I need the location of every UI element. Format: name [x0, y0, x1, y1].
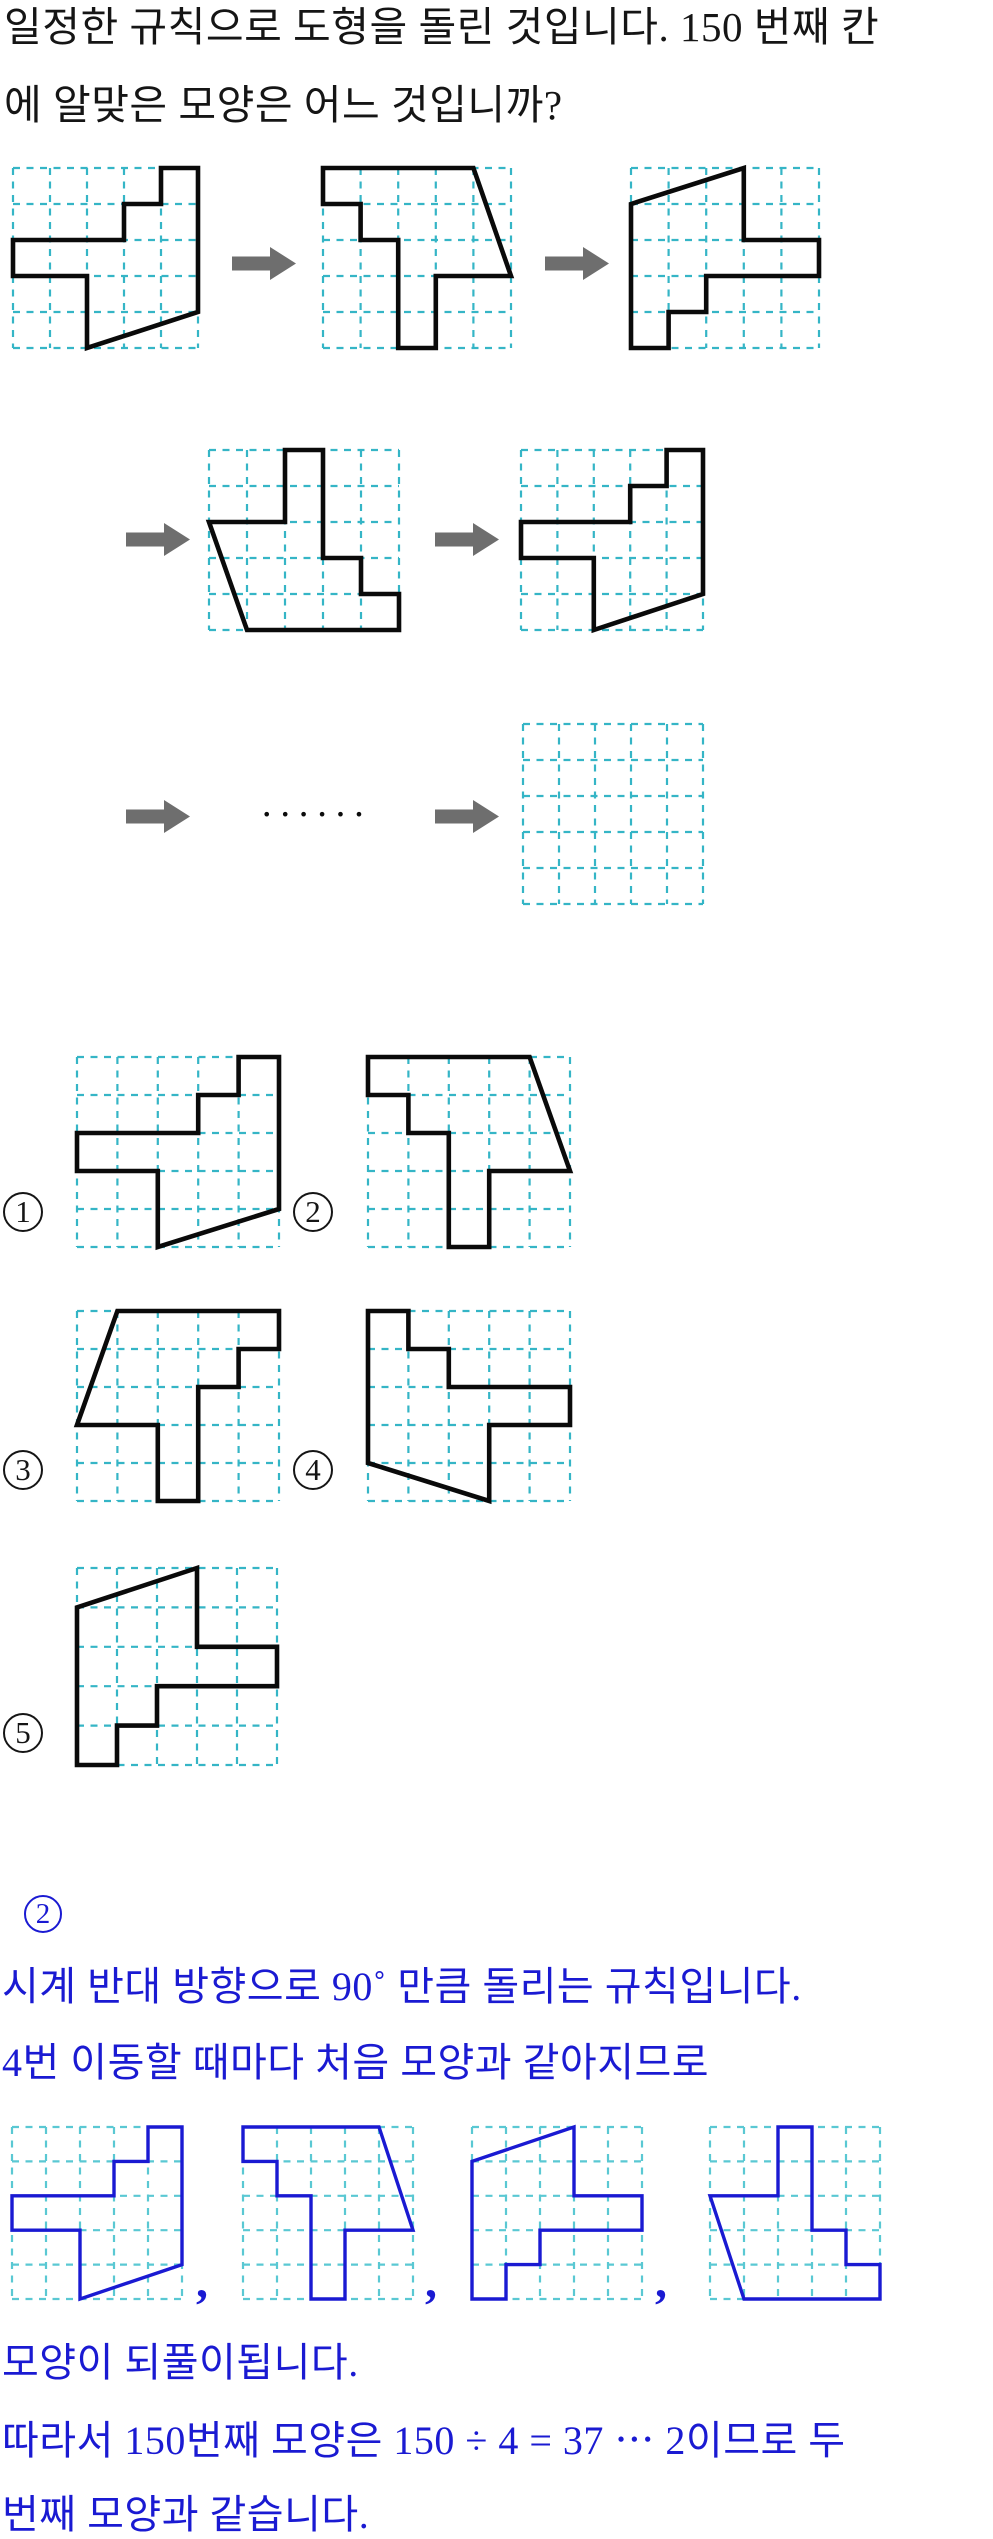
option-5-number: 5	[3, 1713, 43, 1753]
sequence-figure-5	[516, 445, 708, 635]
arrow-right-icon	[126, 523, 190, 556]
answer-text-line-5: 번째 모양과 같습니다.	[2, 2490, 369, 2539]
arrow-right-icon	[435, 523, 499, 556]
worksheet-page: 일정한 규칙으로 도형을 돌린 것입니다. 150 번째 칸 에 알맞은 모양은…	[0, 0, 993, 2539]
sequence-figure-2	[318, 163, 516, 353]
arrow-right-icon	[126, 800, 190, 833]
comma: ,	[196, 2258, 208, 2306]
answer-figure-2	[238, 2122, 418, 2304]
sequence-figure-1	[8, 163, 203, 353]
answer-text-line-4: 따라서 150번째 모양은 150 ÷ 4 = 37 ⋯ 2이므로 두	[2, 2416, 846, 2466]
arrow-right-icon	[435, 800, 499, 833]
answer-text-line-2: 4번 이동할 때마다 처음 모양과 같아지므로	[2, 2038, 709, 2088]
problem-text-line-2: 에 알맞은 모양은 어느 것입니까?	[4, 80, 563, 130]
option-1-number: 1	[3, 1192, 43, 1232]
arrow-right-icon	[232, 247, 296, 280]
answer-figure-3	[467, 2122, 647, 2304]
answer-text-line-1: 시계 반대 방향으로 90˚ 만큼 돌리는 규칙입니다.	[2, 1962, 802, 2012]
problem-text-line-1: 일정한 규칙으로 도형을 돌린 것입니다. 150 번째 칸	[4, 2, 879, 52]
option-2-figure	[363, 1052, 575, 1252]
option-3-figure	[72, 1306, 284, 1506]
option-5-figure	[72, 1563, 282, 1770]
option-2-number: 2	[293, 1192, 333, 1232]
comma: ,	[425, 2258, 437, 2306]
sequence-figure-4	[204, 445, 404, 635]
option-1-figure	[72, 1052, 284, 1252]
sequence-empty-grid	[518, 719, 708, 909]
answer-number: 2	[24, 1895, 62, 1933]
answer-figure-1	[7, 2122, 187, 2304]
arrow-right-icon	[545, 247, 609, 280]
option-3-number: 3	[3, 1450, 43, 1490]
option-4-number: 4	[293, 1450, 333, 1490]
option-4-figure	[363, 1306, 575, 1506]
comma: ,	[655, 2258, 667, 2306]
answer-figure-4	[705, 2122, 885, 2304]
sequence-figure-3	[626, 163, 824, 353]
ellipsis-dots: ••••••	[262, 805, 373, 824]
answer-text-line-3: 모양이 되풀이됩니다.	[2, 2338, 359, 2388]
